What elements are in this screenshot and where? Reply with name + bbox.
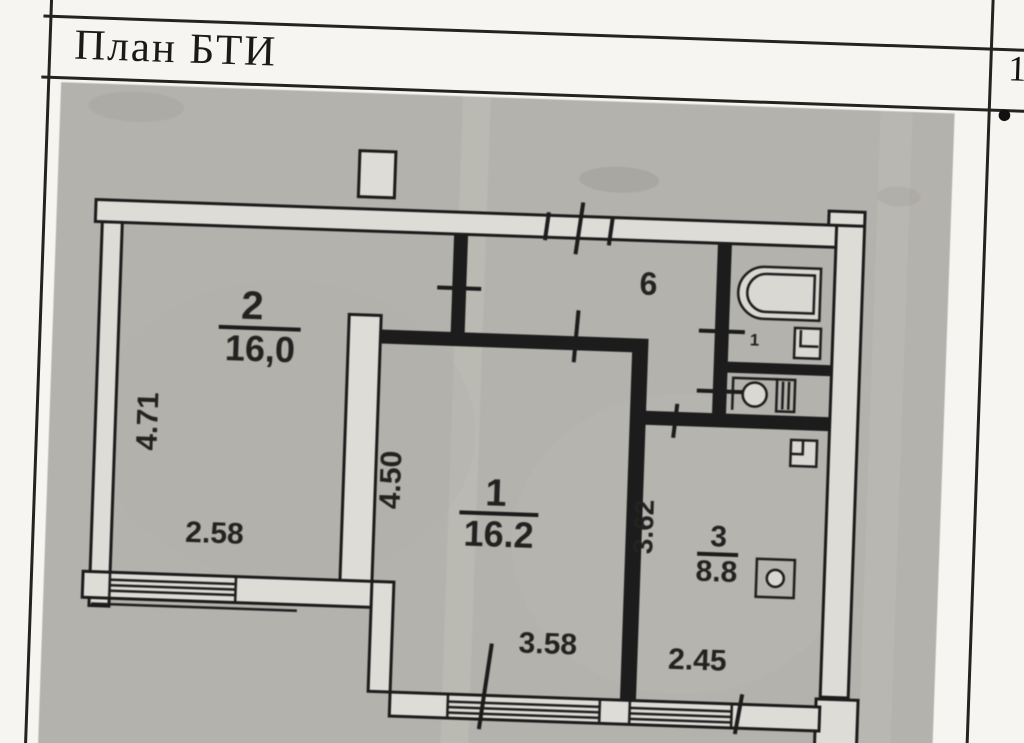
- kitchen-area: 8.8: [695, 555, 738, 589]
- vent-shaft: [358, 151, 396, 198]
- living-number: 1: [485, 472, 508, 515]
- dim-kitchen-width: 2.45: [668, 643, 728, 678]
- bullet-mark: •: [992, 97, 1017, 138]
- sink-icon: [794, 328, 821, 359]
- bathtub-icon: [737, 266, 821, 321]
- toilet-door-tick: [697, 391, 743, 393]
- bti-plan-page: 2 16,0 1 16.2 3 8.8 6 1 2.58 4.71 4.50 3…: [0, 0, 1024, 743]
- scan-photo-background: [37, 82, 955, 743]
- scan-sheet: 2 16,0 1 16.2 3 8.8 6 1 2.58 4.71 4.50 3…: [0, 0, 1023, 743]
- exterior-jog-wall: [368, 581, 394, 692]
- vent-box-icon: [790, 440, 817, 467]
- dim-bedroom-width: 2.58: [185, 516, 245, 551]
- dim-living-depth: 4.50: [373, 450, 408, 510]
- hall-stub-tick: [437, 287, 481, 289]
- kitchen-number: 3: [710, 520, 728, 554]
- floor-plan: 2 16,0 1 16.2 3 8.8 6 1 2.58 4.71 4.50 3…: [0, 0, 1023, 743]
- dim-kitchen-depth: 3.62: [627, 499, 660, 555]
- dim-living-width: 3.58: [518, 627, 578, 662]
- living-area: 16.2: [463, 513, 534, 556]
- bedroom-number: 2: [241, 284, 265, 329]
- page-title: План БТИ: [74, 21, 278, 77]
- edge-partial-letter: 1: [1008, 47, 1024, 90]
- bathroom-door-tick: [699, 331, 745, 333]
- dim-bedroom-depth: 4.71: [130, 392, 165, 452]
- bathroom-mark: 1: [750, 330, 760, 349]
- bedroom-area: 16,0: [224, 327, 295, 370]
- hall-number: 6: [639, 266, 658, 303]
